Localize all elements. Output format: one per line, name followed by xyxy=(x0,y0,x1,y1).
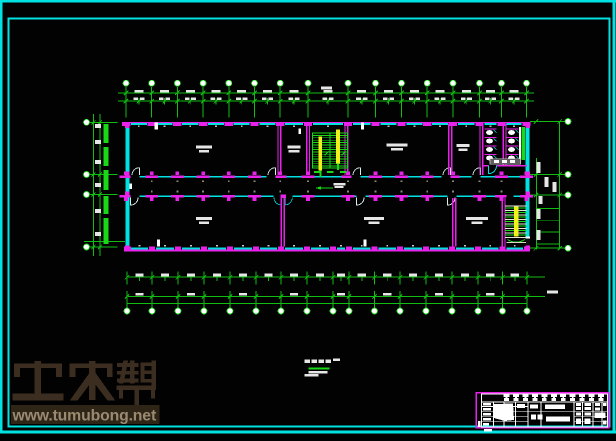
svg-text:www.tumubong.net: www.tumubong.net xyxy=(12,408,157,425)
